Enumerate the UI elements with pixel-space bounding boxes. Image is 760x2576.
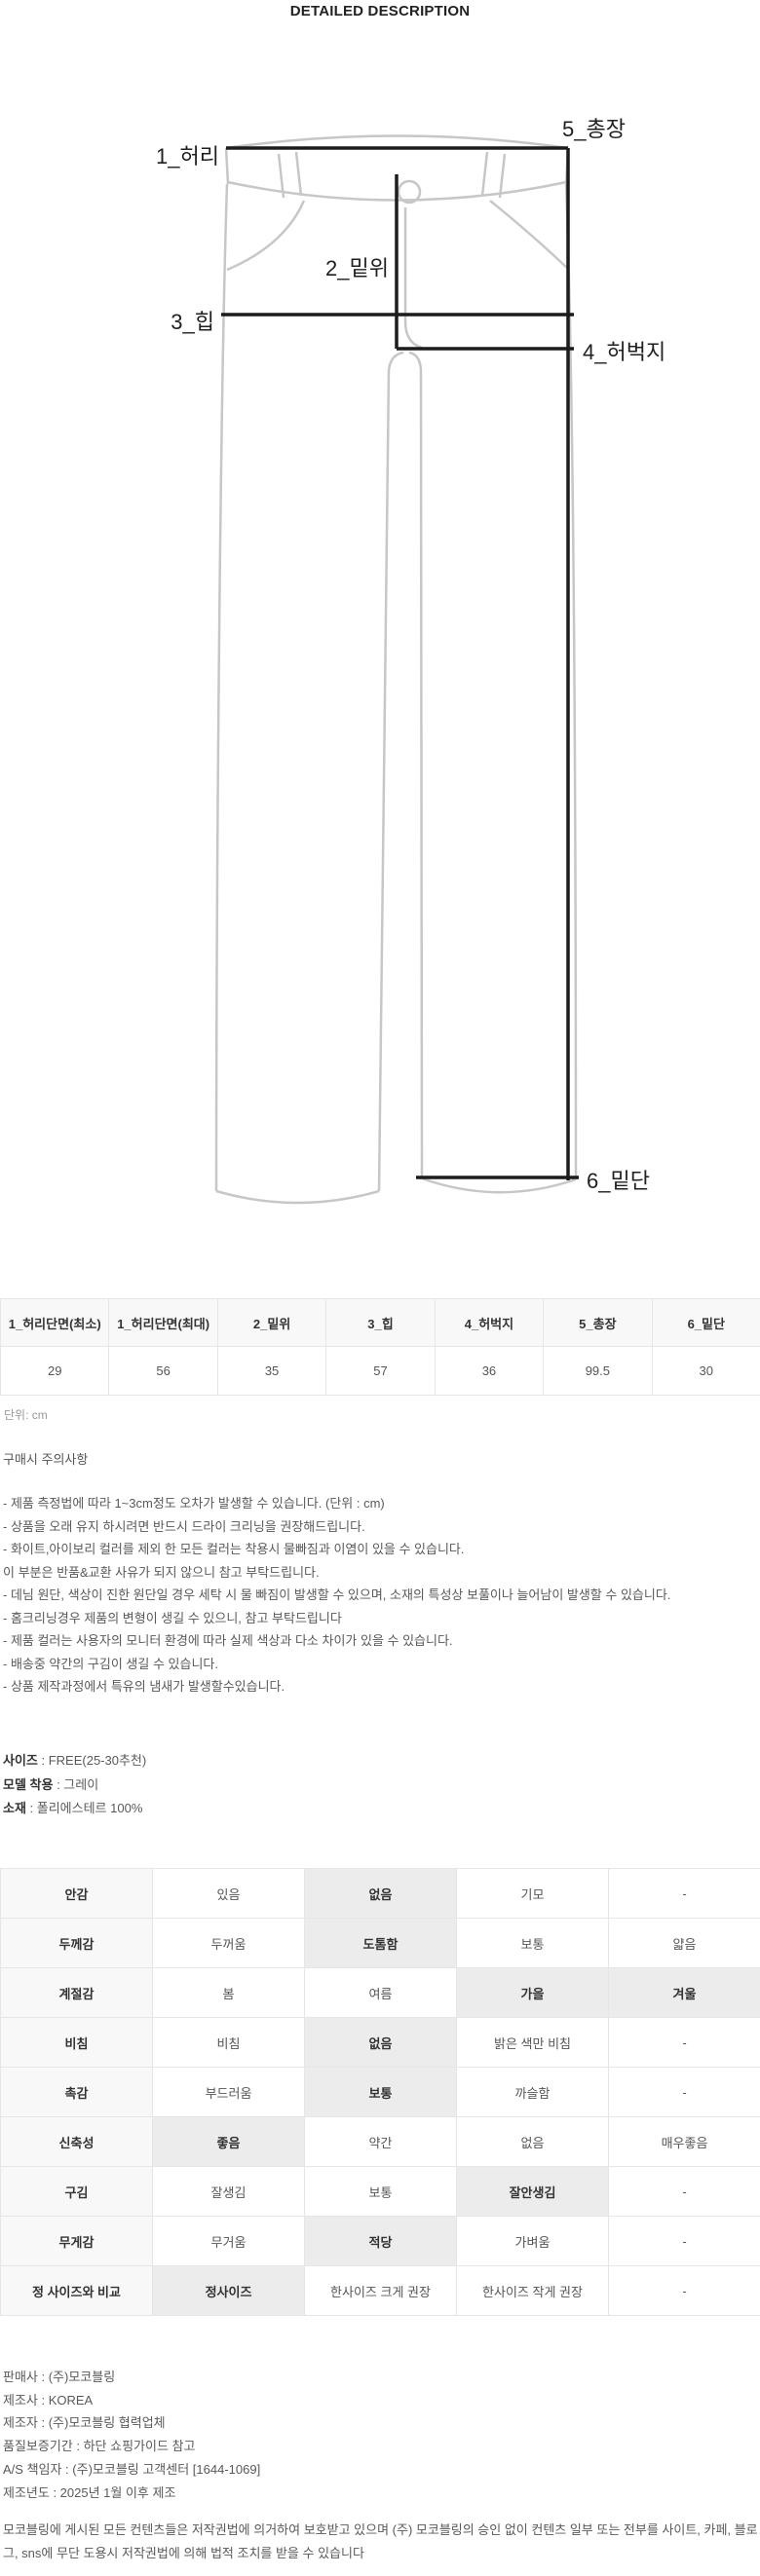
belt-loop [500, 154, 505, 198]
belt-loop [482, 152, 487, 196]
fabric-option: 여름 [305, 1968, 457, 2018]
notice-line: 이 부분은 반품&교환 사유가 되지 않으니 참고 부탁드립니다. [3, 1561, 757, 1585]
rise-label: 2_밑위 [325, 256, 389, 280]
product-info-value: : 폴리에스테르 100% [26, 1801, 142, 1815]
fly-seam [405, 207, 422, 348]
size-table-value-cell: 35 [218, 1347, 326, 1396]
total-length-label: 5_총장 [562, 117, 626, 141]
fabric-option: 가벼움 [457, 2217, 609, 2266]
fabric-option: - [609, 2018, 760, 2068]
seller-info: 판매사 : (주)모코블링제조사 : KOREA제조자 : (주)모코블링 협력… [3, 2366, 260, 2504]
size-table-header-cell: 6_밑단 [653, 1299, 760, 1347]
product-info-line: 모델 착용 : 그레이 [3, 1773, 146, 1798]
fabric-option: 기모 [457, 1869, 609, 1919]
fabric-option: 보통 [457, 1919, 609, 1968]
fabric-option-selected: 없음 [305, 1869, 457, 1919]
fabric-row-label: 두께감 [1, 1919, 153, 1968]
size-table-header-cell: 3_힙 [326, 1299, 435, 1347]
unit-note: 단위: cm [4, 1406, 48, 1423]
size-table-header-cell: 4_허벅지 [436, 1299, 544, 1347]
fabric-option: - [609, 1869, 760, 1919]
size-table-value-cell: 57 [326, 1347, 435, 1396]
fabric-option: - [609, 2068, 760, 2117]
left-hem [216, 1191, 379, 1203]
size-table-header-cell: 1_허리단면(최대) [109, 1299, 217, 1347]
size-table-value-cell: 36 [436, 1347, 544, 1396]
fabric-option-selected: 잘안생김 [457, 2167, 609, 2217]
product-info-line: 소재 : 폴리에스테르 100% [3, 1797, 146, 1821]
seller-info-line: 제조년도 : 2025년 1월 이후 제조 [3, 2482, 260, 2505]
fabric-option-selected: 도톰함 [305, 1919, 457, 1968]
fabric-row-label: 비침 [1, 2018, 153, 2068]
notice-line: - 홈크리닝경우 제품의 변형이 생길 수 있으니, 참고 부탁드립니다 [3, 1607, 757, 1630]
fabric-row-label: 구김 [1, 2167, 153, 2217]
left-inner-seam [379, 353, 403, 1191]
belt-loop [296, 152, 301, 196]
fabric-row-label: 정 사이즈와 비교 [1, 2266, 153, 2316]
size-table-value-cell: 56 [109, 1347, 217, 1396]
fabric-option-selected: 겨울 [609, 1968, 760, 2018]
notice-line: - 상품을 오래 유지 하시려면 반드시 드라이 크리닝을 권장해드립니다. [3, 1515, 757, 1539]
fabric-option: 봄 [153, 1968, 305, 2018]
fabric-option: 있음 [153, 1869, 305, 1919]
fabric-option-selected: 가을 [457, 1968, 609, 2018]
fabric-option: 두꺼움 [153, 1919, 305, 1968]
size-table-header-cell: 5_총장 [544, 1299, 652, 1347]
notice-line: - 제품 측정법에 따라 1~3cm정도 오차가 발생할 수 있습니다. (단위… [3, 1492, 757, 1515]
notice-lines: - 제품 측정법에 따라 1~3cm정도 오차가 발생할 수 있습니다. (단위… [3, 1492, 757, 1699]
fabric-option: - [609, 2217, 760, 2266]
seller-info-line: 판매사 : (주)모코블링 [3, 2366, 260, 2389]
fabric-option-selected: 없음 [305, 2018, 457, 2068]
product-info-label: 모델 착용 [3, 1777, 53, 1792]
fabric-option: 보통 [305, 2167, 457, 2217]
size-table-value-cell: 99.5 [544, 1347, 652, 1396]
fabric-option: 비침 [153, 2018, 305, 2068]
fabric-option: - [609, 2266, 760, 2316]
fabric-row-label: 무게감 [1, 2217, 153, 2266]
measure-lines [221, 148, 579, 1180]
fabric-option-selected: 정사이즈 [153, 2266, 305, 2316]
copyright-text: 모코블링에 게시된 모든 컨텐츠들은 저작권법에 의거하여 보호받고 있으며 (… [3, 2519, 758, 2564]
product-info-label: 사이즈 [3, 1753, 38, 1768]
size-table-header-cell: 1_허리단면(최소) [1, 1299, 109, 1347]
notice-line: - 상품 제작과정에서 특유의 냄새가 발생할수있습니다. [3, 1675, 757, 1699]
fabric-option: 약간 [305, 2117, 457, 2167]
fabric-option: 한사이즈 크게 권장 [305, 2266, 457, 2316]
notice-line: - 데님 원단, 색상이 진한 원단일 경우 세탁 시 물 빠짐이 발생할 수 … [3, 1584, 757, 1607]
fabric-option: 밝은 색만 비침 [457, 2018, 609, 2068]
left-pocket [227, 201, 304, 270]
product-detail-page: DETAILED DESCRIPTION [0, 0, 760, 2576]
fabric-row-label: 안감 [1, 1869, 153, 1919]
fabric-option: 한사이즈 작게 권장 [457, 2266, 609, 2316]
fabric-row-label: 계절감 [1, 1968, 153, 2018]
fabric-option: 잘생김 [153, 2167, 305, 2217]
fabric-option: 얇음 [609, 1919, 760, 1968]
size-table-value-cell: 30 [653, 1347, 760, 1396]
fabric-option: 무거움 [153, 2217, 305, 2266]
size-table-header-cell: 2_밑위 [218, 1299, 326, 1347]
right-inner-seam [409, 353, 422, 1178]
right-pocket [490, 201, 567, 268]
product-info-value: : 그레이 [53, 1777, 98, 1792]
notice-line: - 배송중 약간의 구김이 생길 수 있습니다. [3, 1653, 757, 1676]
notice-line: - 제품 컬러는 사용자의 모니터 환경에 따라 실제 색상과 다소 차이가 있… [3, 1629, 757, 1653]
hem-label: 6_밑단 [587, 1169, 650, 1193]
seller-info-line: 제조사 : KOREA [3, 2389, 260, 2412]
seller-info-line: 품질보증기간 : 하단 쇼핑가이드 참고 [3, 2435, 260, 2458]
fabric-option-selected: 보통 [305, 2068, 457, 2117]
pants-measurement-diagram: 1_허리 5_총장 2_밑위 3_힙 4_허벅지 6_밑단 [0, 0, 760, 1247]
hip-label: 3_힙 [171, 310, 214, 334]
fabric-option: 매우좋음 [609, 2117, 760, 2167]
waist-label: 1_허리 [156, 144, 219, 168]
size-table: 1_허리단면(최소)1_허리단면(최대)2_밑위3_힙4_허벅지5_총장6_밑단… [0, 1298, 760, 1396]
fabric-option: 까슬함 [457, 2068, 609, 2117]
product-info-label: 소재 [3, 1801, 26, 1815]
fabric-table: 안감있음없음기모-두께감두꺼움도톰함보통얇음계절감봄여름가을겨울비침비침없음밝은… [0, 1868, 760, 2316]
fabric-option-selected: 적당 [305, 2217, 457, 2266]
fabric-row-label: 신축성 [1, 2117, 153, 2167]
fabric-row-label: 촉감 [1, 2068, 153, 2117]
fabric-option: 없음 [457, 2117, 609, 2167]
product-info-value: : FREE(25-30추천) [38, 1753, 146, 1768]
left-outer-seam [216, 184, 227, 1191]
right-hem [422, 1178, 576, 1192]
seller-info-line: 제조자 : (주)모코블링 협력업체 [3, 2411, 260, 2435]
thigh-label: 4_허벅지 [583, 340, 665, 364]
product-info-line: 사이즈 : FREE(25-30추천) [3, 1749, 146, 1773]
notice-line: - 화이트,아이보리 컬러를 제외 한 모든 컬러는 착용시 물빠짐과 이염이 … [3, 1538, 757, 1561]
size-table-value-cell: 29 [1, 1347, 109, 1396]
fabric-option: - [609, 2167, 760, 2217]
fabric-option-selected: 좋음 [153, 2117, 305, 2167]
fabric-option: 부드러움 [153, 2068, 305, 2117]
seller-info-line: A/S 책임자 : (주)모코블링 고객센터 [1644-1069] [3, 2458, 260, 2482]
product-info: 사이즈 : FREE(25-30추천)모델 착용 : 그레이소재 : 폴리에스테… [3, 1749, 146, 1821]
notice-heading: 구매시 주의사항 [3, 1449, 88, 1468]
